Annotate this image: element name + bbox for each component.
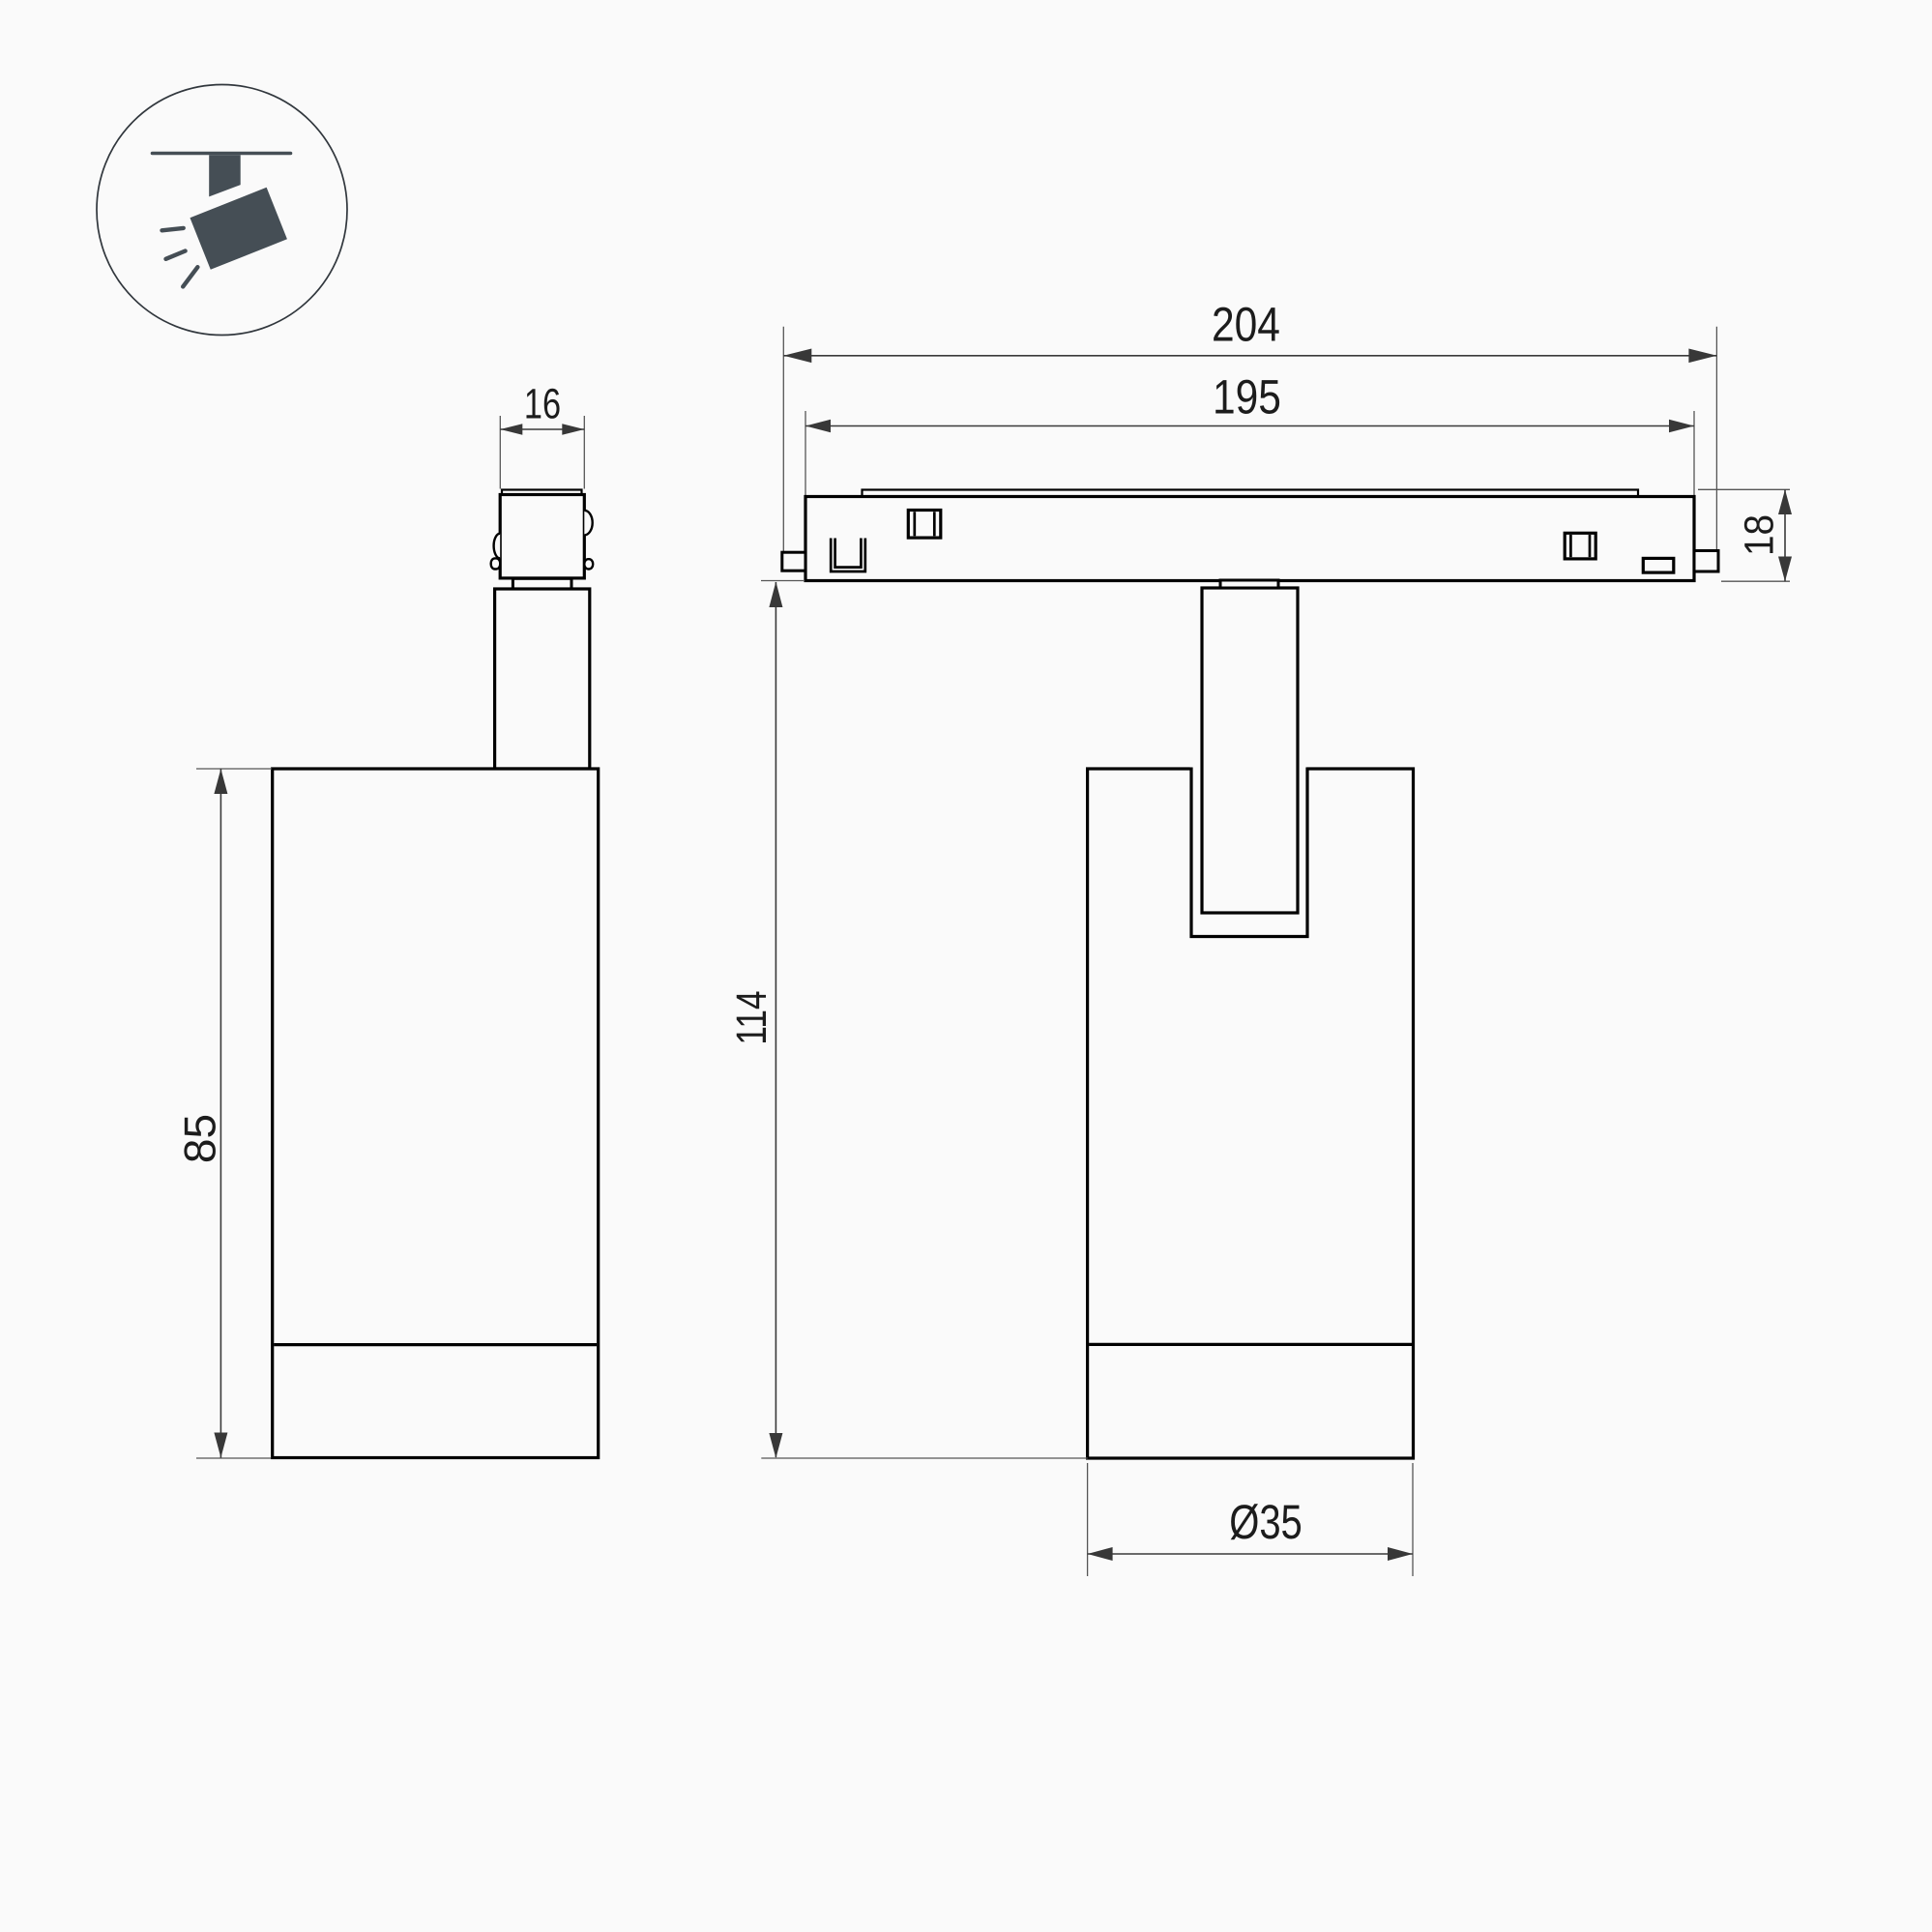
svg-text:85: 85 (175, 1114, 225, 1163)
svg-text:16: 16 (524, 381, 561, 428)
svg-text:195: 195 (1213, 370, 1281, 424)
svg-text:Ø35: Ø35 (1229, 1495, 1303, 1549)
svg-text:114: 114 (728, 990, 776, 1044)
svg-text:204: 204 (1212, 298, 1280, 352)
svg-text:18: 18 (1738, 514, 1783, 556)
